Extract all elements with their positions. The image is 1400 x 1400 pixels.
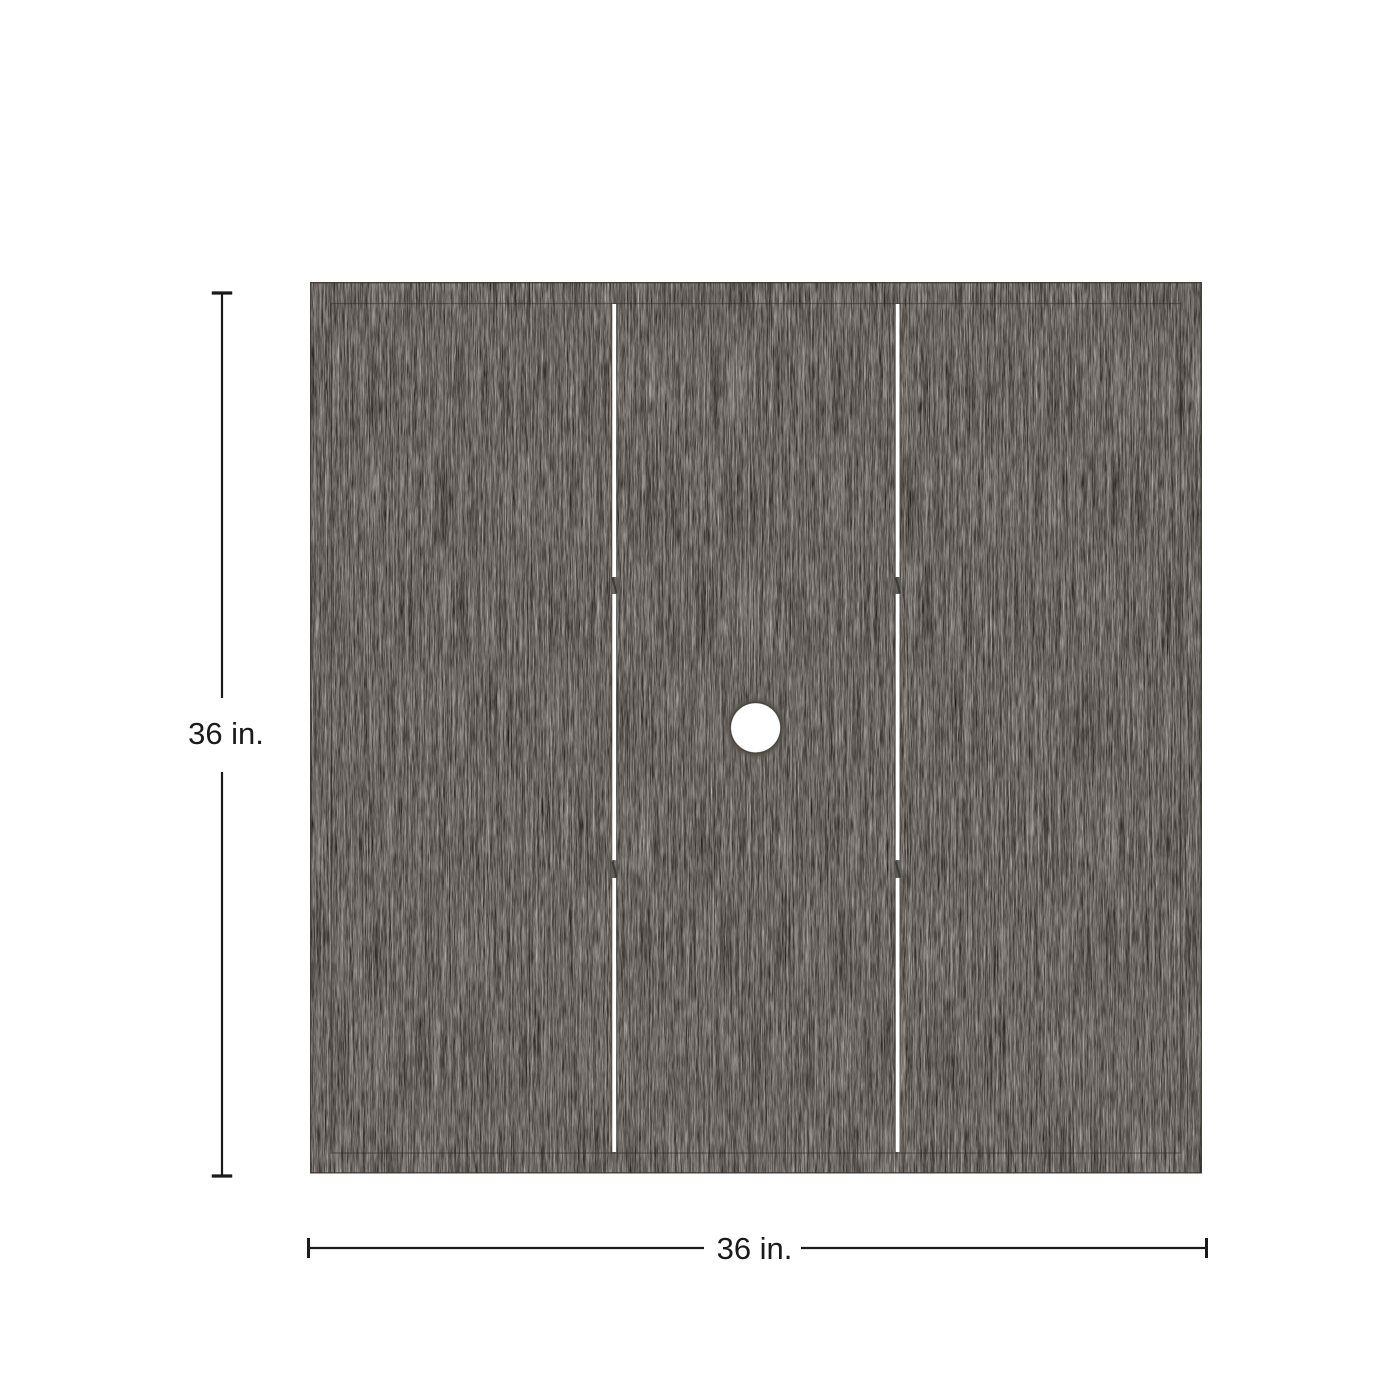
svg-text:36 in.: 36 in.: [717, 1231, 793, 1266]
svg-text:36 in.: 36 in.: [188, 716, 264, 751]
